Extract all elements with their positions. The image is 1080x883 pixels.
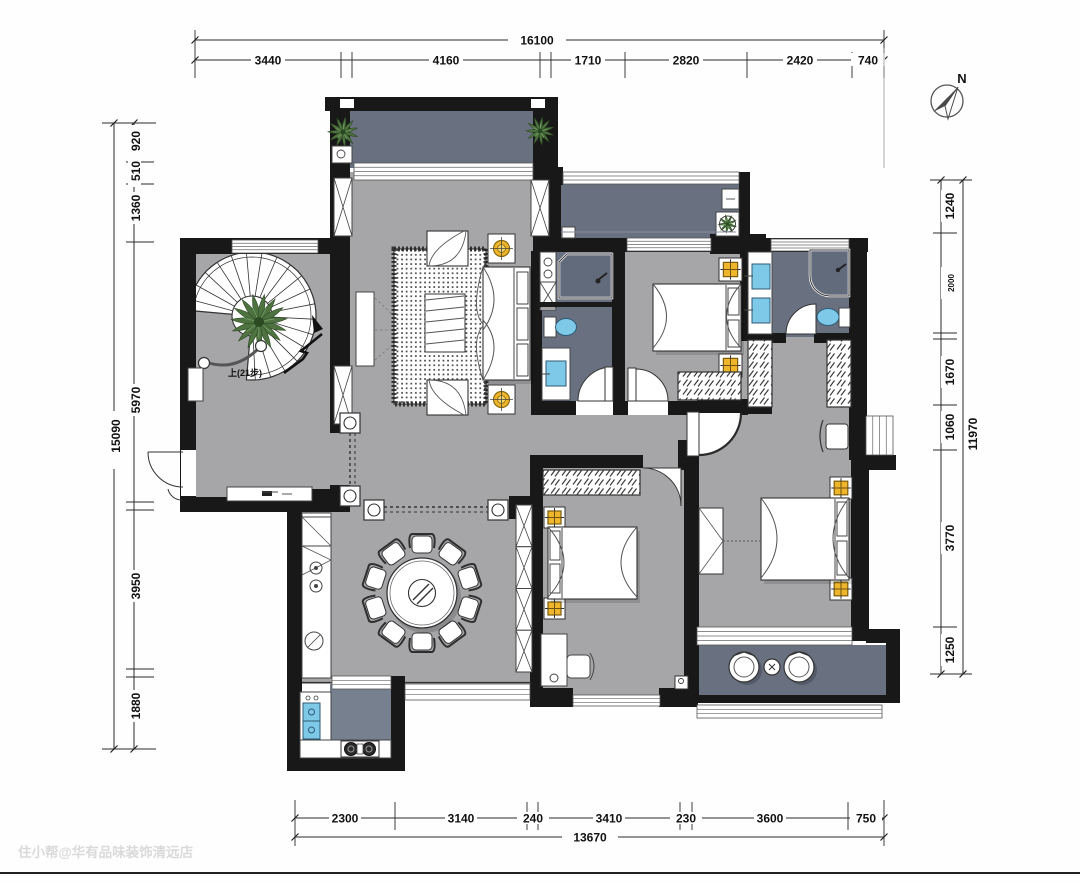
svg-text:240: 240 xyxy=(523,812,543,826)
svg-text:3140: 3140 xyxy=(448,812,475,826)
svg-text:1880: 1880 xyxy=(129,692,143,719)
svg-text:16100: 16100 xyxy=(520,34,554,48)
svg-text:5970: 5970 xyxy=(129,386,143,413)
svg-text:上(21步): 上(21步) xyxy=(228,367,262,378)
svg-text:740: 740 xyxy=(858,54,878,68)
svg-text:3410: 3410 xyxy=(596,812,623,826)
svg-text:3440: 3440 xyxy=(255,54,282,68)
svg-text:13670: 13670 xyxy=(573,831,607,845)
svg-text:1240: 1240 xyxy=(943,192,957,219)
svg-text:2300: 2300 xyxy=(332,812,359,826)
svg-text:住小帮@华有品味装饰清远店: 住小帮@华有品味装饰清远店 xyxy=(18,844,194,860)
svg-text:1250: 1250 xyxy=(943,636,957,663)
svg-text:1060: 1060 xyxy=(943,413,957,440)
svg-text:3600: 3600 xyxy=(757,812,784,826)
svg-text:750: 750 xyxy=(856,812,876,826)
svg-text:3950: 3950 xyxy=(129,572,143,599)
svg-text:3770: 3770 xyxy=(943,524,957,551)
svg-text:1670: 1670 xyxy=(943,358,957,385)
svg-text:230: 230 xyxy=(676,812,696,826)
svg-text:2420: 2420 xyxy=(787,54,814,68)
svg-text:11970: 11970 xyxy=(966,417,980,450)
svg-text:920: 920 xyxy=(129,131,143,151)
svg-text:N: N xyxy=(957,71,966,86)
svg-text:1710: 1710 xyxy=(575,54,602,68)
svg-text:4160: 4160 xyxy=(433,54,460,68)
svg-text:2820: 2820 xyxy=(673,54,700,68)
svg-text:2000: 2000 xyxy=(947,274,956,292)
svg-text:1360: 1360 xyxy=(129,194,143,221)
svg-text:15090: 15090 xyxy=(109,419,123,453)
svg-text:510: 510 xyxy=(129,161,143,181)
